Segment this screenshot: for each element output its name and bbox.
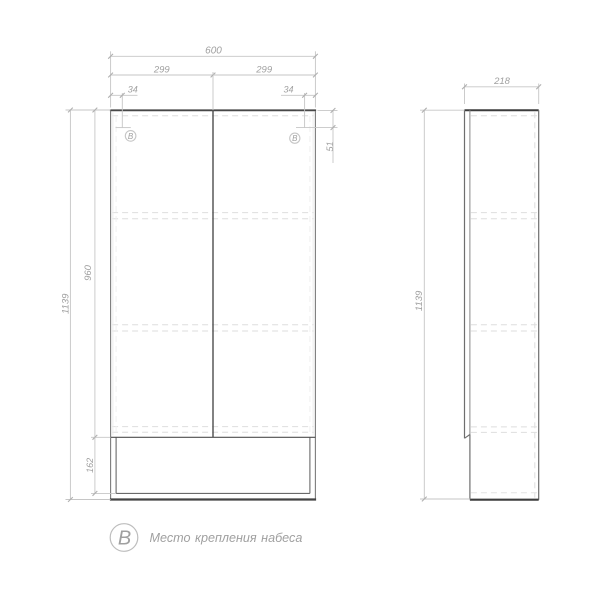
svg-text:В: В bbox=[128, 132, 134, 141]
svg-text:34: 34 bbox=[128, 85, 138, 95]
svg-text:1139: 1139 bbox=[414, 290, 425, 311]
svg-text:В: В bbox=[118, 528, 131, 550]
svg-text:162: 162 bbox=[85, 458, 95, 473]
svg-text:51: 51 bbox=[325, 141, 335, 151]
svg-text:299: 299 bbox=[153, 64, 171, 75]
svg-text:299: 299 bbox=[255, 64, 273, 75]
svg-text:34: 34 bbox=[283, 85, 293, 95]
svg-text:Место крепления набеса: Место крепления набеса bbox=[150, 531, 303, 545]
svg-text:960: 960 bbox=[83, 264, 94, 281]
svg-text:1139: 1139 bbox=[60, 293, 71, 314]
svg-text:600: 600 bbox=[205, 46, 222, 57]
svg-text:218: 218 bbox=[493, 76, 511, 87]
svg-text:В: В bbox=[292, 134, 298, 143]
